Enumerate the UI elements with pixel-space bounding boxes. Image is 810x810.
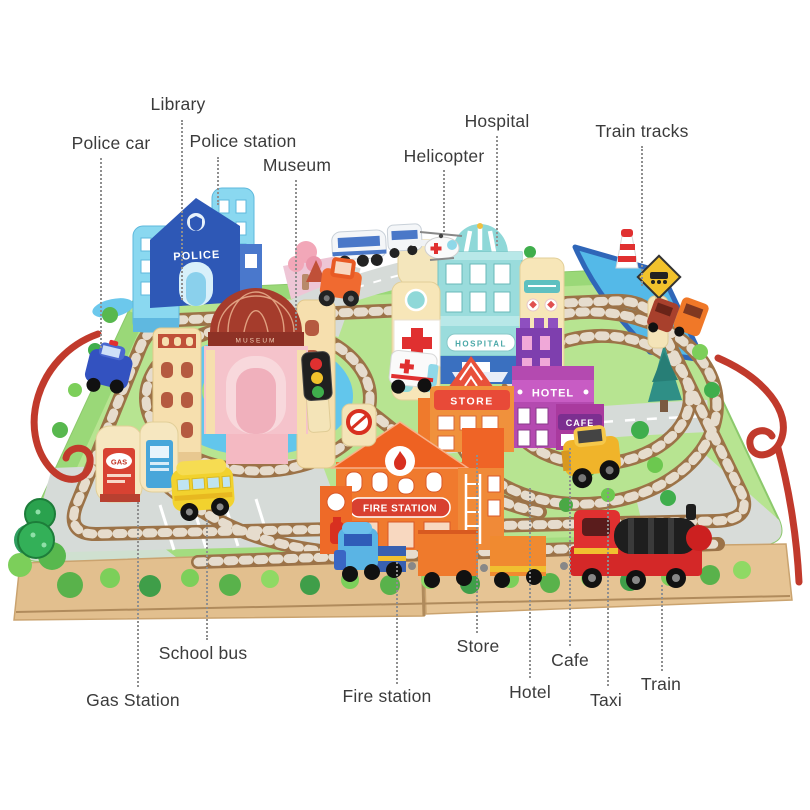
label-library: Library	[151, 94, 206, 115]
leader-library	[181, 120, 183, 300]
leader-helicopter	[443, 170, 445, 232]
leader-train	[661, 585, 663, 671]
leader-store	[476, 455, 478, 633]
leader-museum	[295, 180, 297, 330]
label-school-bus: School bus	[159, 643, 248, 664]
tree-block	[18, 499, 55, 558]
leader-fire-station	[396, 562, 398, 684]
store-sign: STORE	[450, 396, 493, 408]
label-hospital: Hospital	[465, 111, 530, 132]
leader-train-tracks	[641, 146, 643, 286]
leader-hotel	[529, 488, 531, 678]
gas-station-blocks: GAS	[96, 422, 178, 502]
museum-sign: MUSEUM	[236, 338, 277, 345]
leader-school-bus	[206, 520, 208, 640]
label-helicopter: Helicopter	[404, 146, 485, 167]
label-taxi: Taxi	[590, 690, 622, 711]
fire-station-sign: FIRE STATION	[363, 504, 437, 515]
leader-hospital	[496, 136, 498, 246]
label-police-station: Police station	[190, 131, 297, 152]
label-museum: Museum	[263, 155, 331, 176]
label-store: Store	[457, 636, 500, 657]
label-cafe: Cafe	[551, 650, 589, 671]
hospital-sign: HOSPITAL	[455, 340, 507, 349]
label-hotel: Hotel	[509, 682, 551, 703]
leader-cafe	[569, 448, 571, 646]
leader-police-car	[100, 158, 102, 348]
label-gas-station: Gas Station	[86, 690, 180, 711]
lighthouse	[616, 229, 638, 268]
gas-sign: GAS	[111, 458, 127, 467]
leader-police-station	[217, 157, 219, 205]
label-train-tracks: Train tracks	[595, 121, 688, 142]
label-fire-station: Fire station	[343, 686, 432, 707]
no-entry-sign-block	[342, 404, 376, 446]
label-police-car: Police car	[72, 133, 151, 154]
hotel-sign: HOTEL	[532, 388, 574, 400]
leader-gas-station	[137, 502, 139, 687]
label-train: Train	[641, 674, 681, 695]
toy-town-product-photo: POLICE MUSEUM	[0, 0, 810, 810]
leader-taxi	[607, 488, 609, 686]
